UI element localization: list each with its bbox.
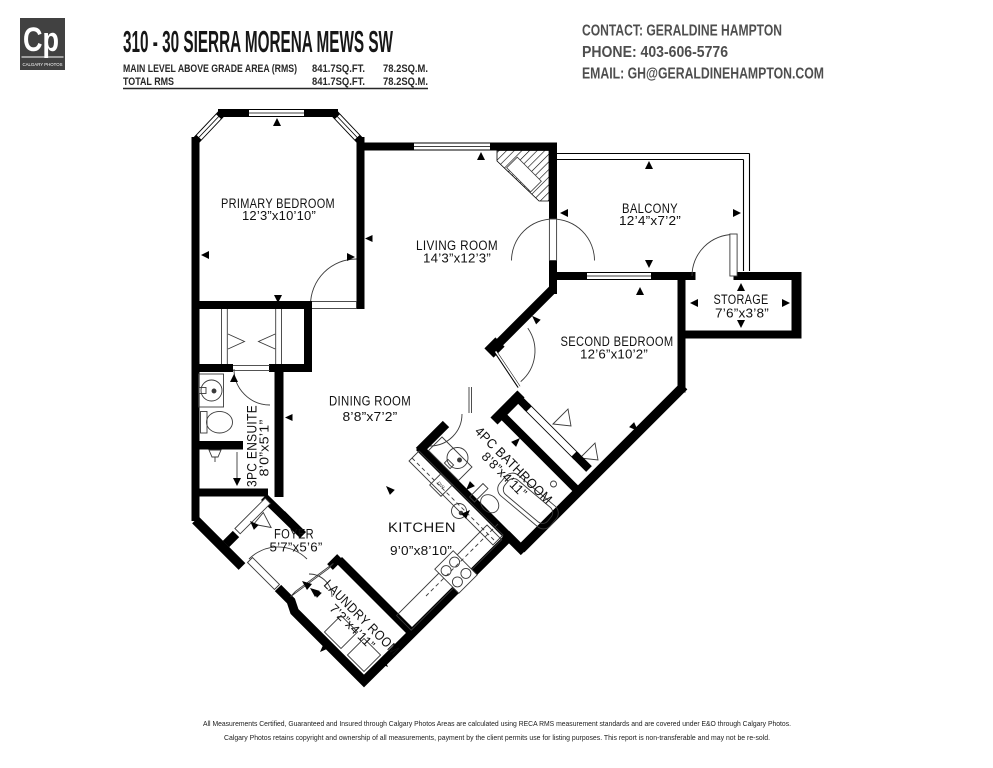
svg-text:9’0”x8’10”: 9’0”x8’10” bbox=[390, 543, 452, 558]
svg-text:MAIN LEVEL ABOVE GRADE AREA (R: MAIN LEVEL ABOVE GRADE AREA (RMS) bbox=[123, 63, 297, 75]
svg-text:All Measurements Certified, Gu: All Measurements Certified, Guaranteed a… bbox=[203, 719, 791, 728]
svg-text:Cp: Cp bbox=[23, 21, 59, 59]
svg-text:Calgary Photos retains copyrig: Calgary Photos retains copyright and own… bbox=[224, 733, 770, 742]
svg-text:12’3”x10’10”: 12’3”x10’10” bbox=[242, 208, 316, 223]
svg-text:KITCHEN: KITCHEN bbox=[388, 520, 456, 535]
svg-text:EMAIL: GH@GERALDINEHAMPTON.COM: EMAIL: GH@GERALDINEHAMPTON.COM bbox=[582, 66, 824, 83]
svg-text:841.7SQ.FT.: 841.7SQ.FT. bbox=[312, 63, 365, 75]
svg-text:12’4”x7’2”: 12’4”x7’2” bbox=[619, 213, 681, 228]
svg-text:12’6”x10’2”: 12’6”x10’2” bbox=[580, 347, 648, 362]
svg-text:841.7SQ.FT.: 841.7SQ.FT. bbox=[312, 76, 365, 88]
svg-text:7’6”x3’8”: 7’6”x3’8” bbox=[715, 306, 769, 321]
svg-text:310 - 30 SIERRA MORENA MEWS SW: 310 - 30 SIERRA MORENA MEWS SW bbox=[123, 24, 393, 59]
svg-text:14’3”x12’3”: 14’3”x12’3” bbox=[423, 251, 491, 266]
svg-text:CONTACT: GERALDINE HAMPTON: CONTACT: GERALDINE HAMPTON bbox=[582, 23, 782, 40]
svg-text:TOTAL RMS: TOTAL RMS bbox=[123, 76, 174, 88]
svg-text:78.2SQ.M.: 78.2SQ.M. bbox=[383, 63, 428, 75]
svg-text:DINING ROOM: DINING ROOM bbox=[329, 394, 411, 409]
svg-text:8’8”x7’2”: 8’8”x7’2” bbox=[343, 409, 398, 424]
svg-text:PHONE: 403-606-5776: PHONE: 403-606-5776 bbox=[582, 44, 728, 61]
svg-text:5’7”x5’6”: 5’7”x5’6” bbox=[270, 540, 323, 555]
svg-text:78.2SQ.M.: 78.2SQ.M. bbox=[383, 76, 428, 88]
svg-text:8’0”x5’1”: 8’0”x5’1” bbox=[257, 420, 272, 477]
svg-text:CALGARY PHOTOS: CALGARY PHOTOS bbox=[23, 62, 63, 67]
